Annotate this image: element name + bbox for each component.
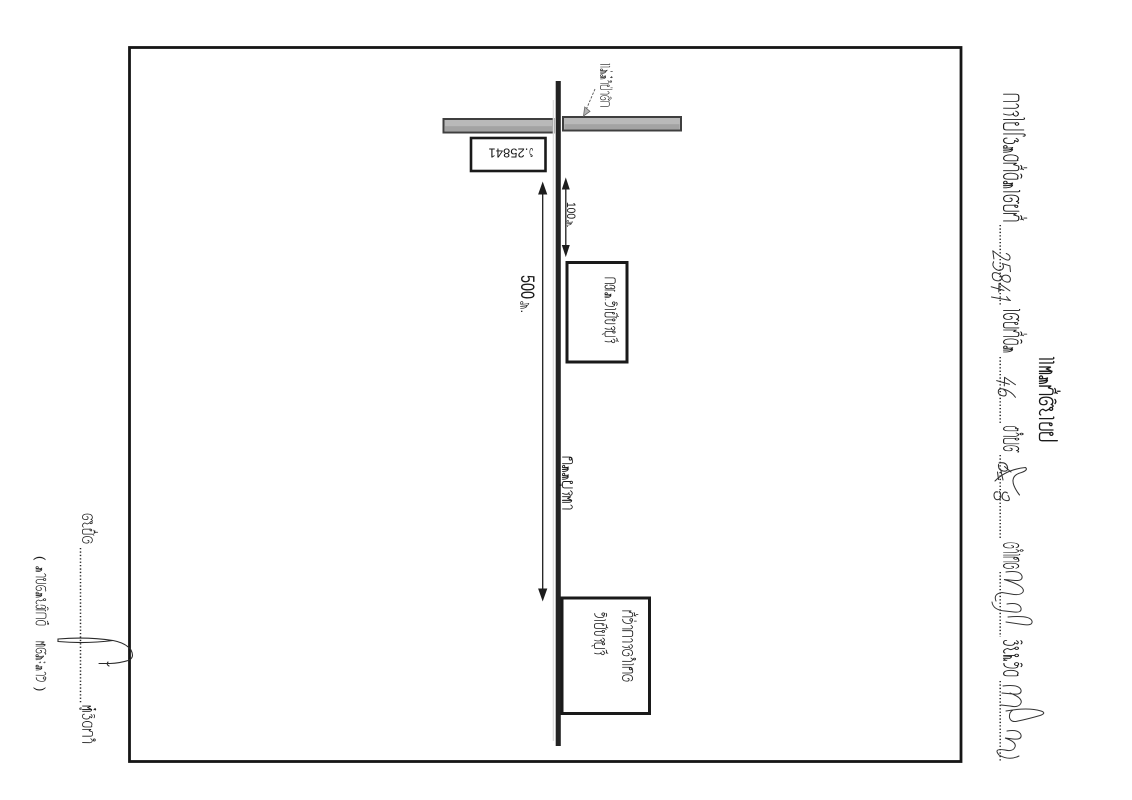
svg-text:(: ( (33, 556, 48, 561)
svg-text:500: 500 (516, 275, 539, 299)
svg-text:.: . (565, 225, 575, 228)
svg-text:100: 100 (564, 202, 577, 219)
svg-text:.: . (518, 310, 533, 314)
svg-text:): ) (33, 687, 48, 691)
svg-text:.25841: .25841 (489, 146, 529, 161)
